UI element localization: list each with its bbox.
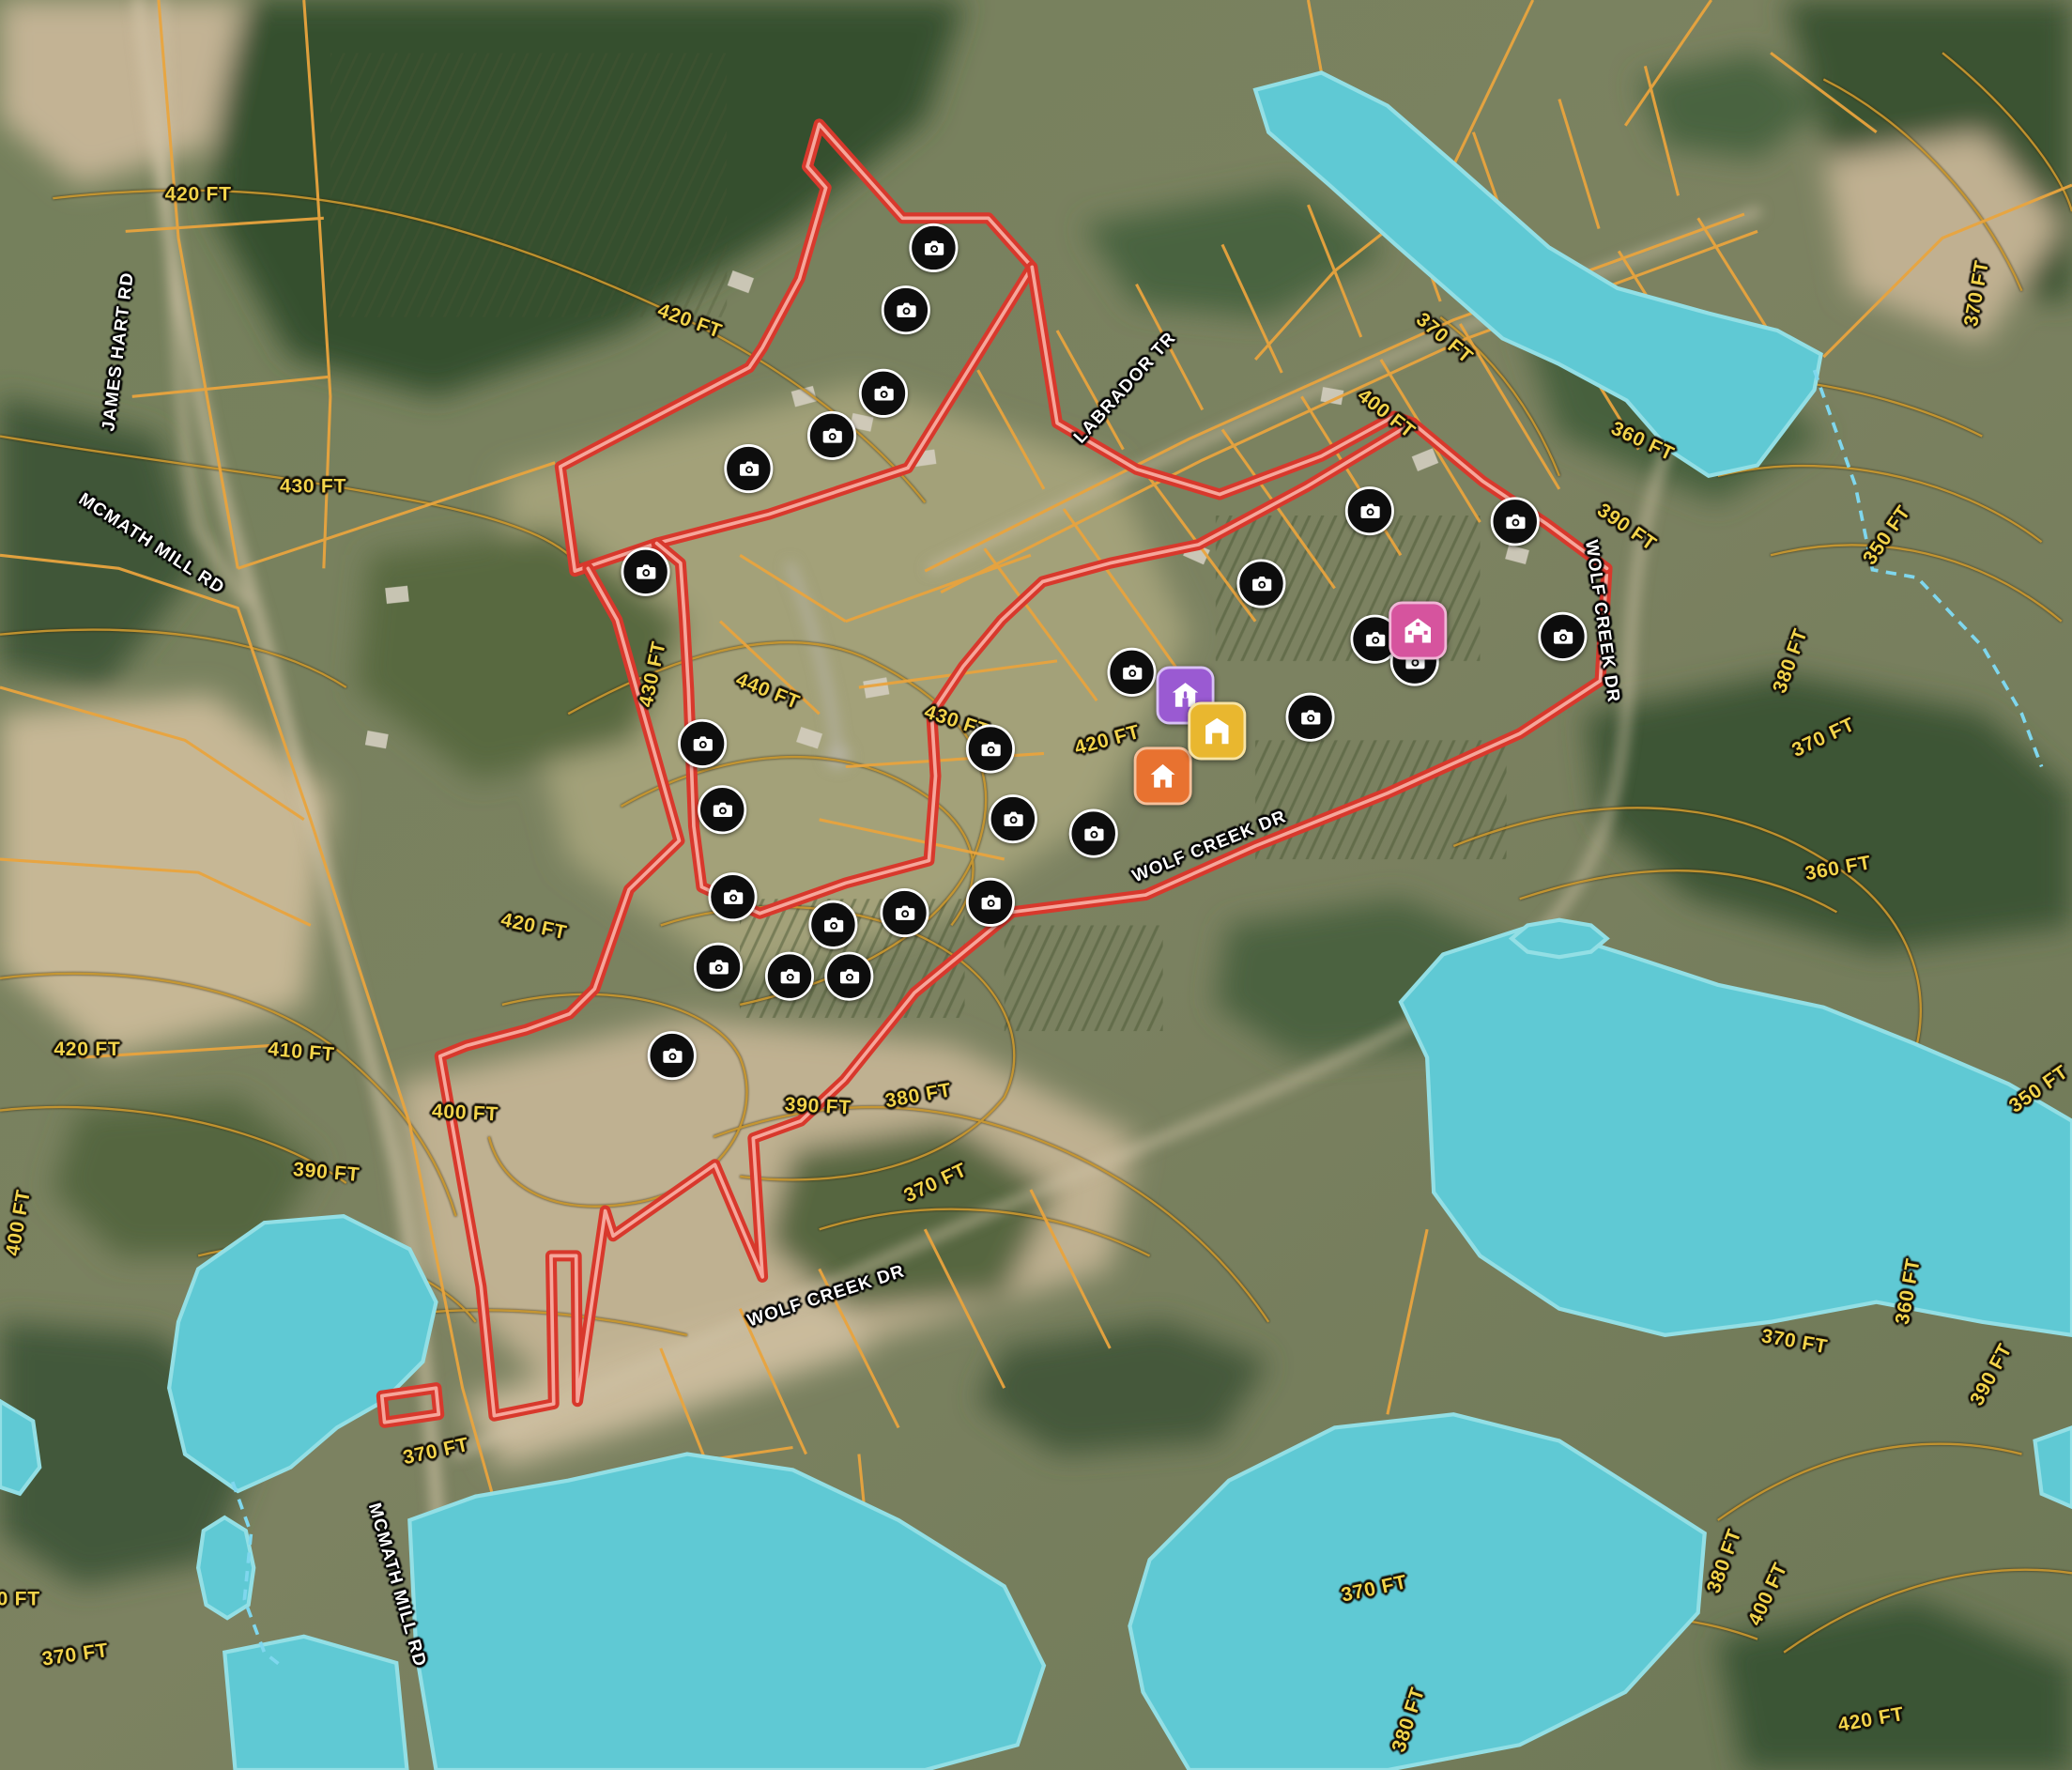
camera-icon	[719, 884, 745, 910]
barn-icon	[1200, 714, 1235, 748]
camera-icon	[891, 900, 917, 926]
camera-icon	[920, 235, 946, 261]
camera-icon	[1248, 570, 1274, 596]
photo-camera-marker[interactable]	[966, 724, 1015, 773]
photo-camera-marker[interactable]	[1108, 648, 1157, 697]
home-pin-orange[interactable]	[1134, 746, 1192, 805]
photo-camera-marker[interactable]	[694, 943, 743, 992]
photo-camera-marker[interactable]	[808, 900, 857, 949]
photo-camera-marker[interactable]	[765, 952, 814, 1001]
camera-icon	[819, 423, 845, 449]
photo-camera-marker[interactable]	[882, 285, 930, 334]
camera-icon	[1502, 508, 1528, 534]
photo-camera-marker[interactable]	[1491, 497, 1540, 546]
photo-camera-marker[interactable]	[724, 444, 773, 493]
camera-icon	[735, 455, 761, 482]
photo-camera-marker[interactable]	[1538, 612, 1587, 661]
photo-camera-marker[interactable]	[698, 785, 746, 834]
camera-icon	[893, 297, 919, 323]
school-icon	[1401, 613, 1435, 648]
photo-camera-marker[interactable]	[859, 369, 908, 418]
photo-camera-marker[interactable]	[678, 719, 727, 768]
photo-camera-marker[interactable]	[989, 794, 1037, 843]
camera-icon	[1081, 821, 1107, 847]
camera-icon	[870, 380, 897, 407]
camera-icon	[1118, 659, 1144, 685]
photo-camera-marker[interactable]	[1345, 486, 1394, 535]
camera-icon	[705, 954, 731, 980]
photo-camera-marker[interactable]	[708, 872, 757, 921]
camera-icon	[836, 963, 862, 990]
camera-icon	[1549, 623, 1575, 650]
photo-camera-marker[interactable]	[966, 878, 1015, 927]
lake	[198, 1517, 253, 1618]
house-icon	[1145, 759, 1180, 793]
camera-icon	[977, 889, 1004, 916]
photo-camera-marker[interactable]	[1236, 559, 1285, 608]
photo-camera-marker[interactable]	[648, 1031, 697, 1080]
satellite-imagery	[0, 0, 2072, 1770]
camera-icon	[689, 731, 715, 757]
photo-camera-marker[interactable]	[909, 223, 958, 272]
camera-icon	[709, 796, 735, 823]
photo-camera-marker[interactable]	[807, 411, 856, 460]
lake	[224, 1637, 407, 1770]
camera-icon	[1361, 626, 1388, 653]
photo-camera-marker[interactable]	[1286, 693, 1335, 742]
camera-icon	[776, 963, 803, 990]
photo-camera-marker[interactable]	[622, 547, 670, 596]
camera-icon	[1357, 498, 1383, 524]
photo-camera-marker[interactable]	[1069, 809, 1118, 858]
camera-icon	[659, 1042, 685, 1069]
barn-pin-yellow[interactable]	[1188, 702, 1246, 761]
camera-icon	[1000, 806, 1026, 832]
camera-icon	[820, 912, 846, 938]
camera-icon	[632, 559, 658, 585]
camera-icon	[1297, 704, 1323, 731]
lake	[1512, 920, 1606, 957]
map-canvas[interactable]: 420 FT430 FT420 FT430 FT440 FT430 FT420 …	[0, 0, 2072, 1770]
lake	[2035, 1427, 2072, 1506]
school-pin-pink[interactable]	[1389, 602, 1447, 660]
photo-camera-marker[interactable]	[880, 888, 929, 937]
photo-camera-marker[interactable]	[824, 952, 873, 1001]
camera-icon	[977, 735, 1004, 762]
